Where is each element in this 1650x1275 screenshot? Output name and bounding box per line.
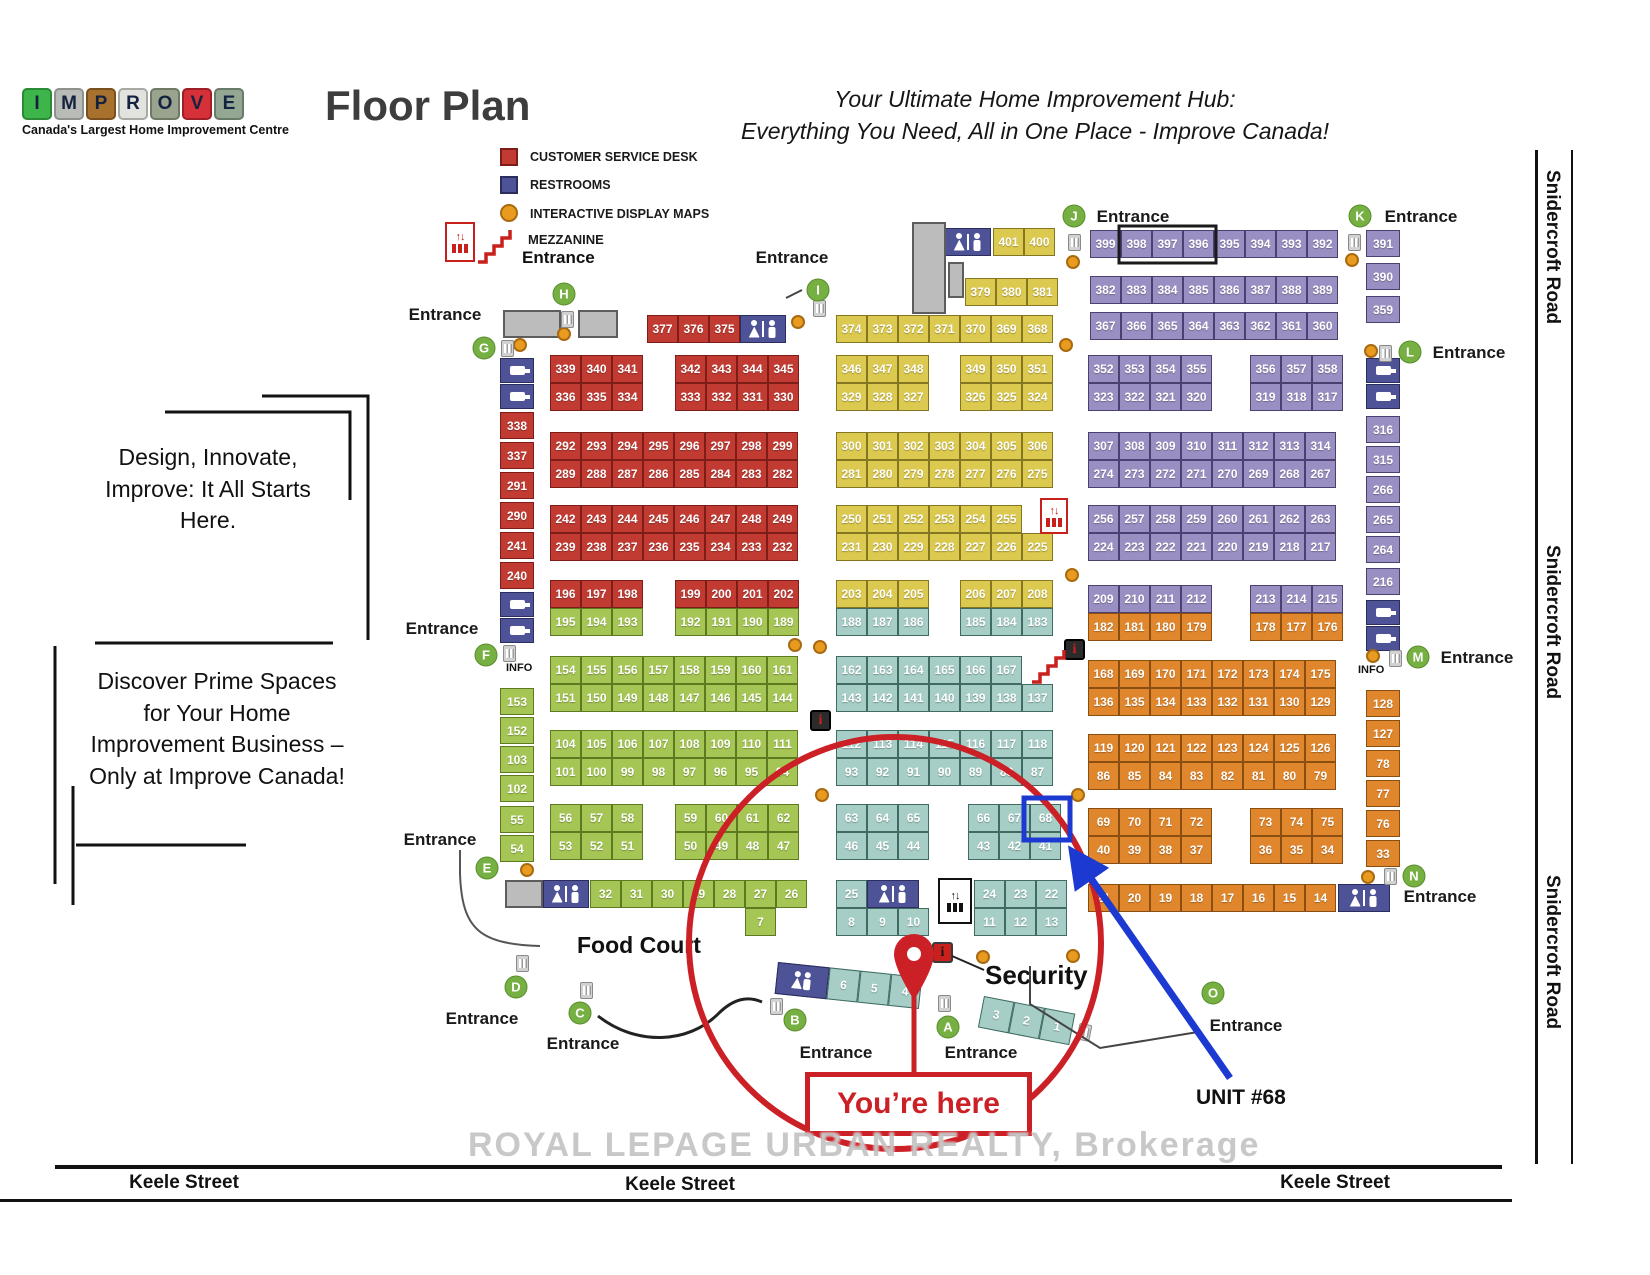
unit-115: 115: [929, 730, 960, 758]
unit-162: 162: [836, 656, 867, 684]
unit-374: 374: [836, 315, 867, 343]
unit-49: 49: [706, 832, 737, 860]
service-area-block: [503, 310, 561, 338]
unit-245: 245: [643, 505, 674, 533]
unit-385: 385: [1183, 276, 1214, 304]
unit-161: 161: [767, 656, 798, 684]
unit-298: 298: [736, 432, 767, 460]
entrance-marker-n: N: [1403, 865, 1426, 888]
unit-163: 163: [867, 656, 898, 684]
unit-240: 240: [500, 562, 534, 589]
unit-309: 309: [1150, 432, 1181, 460]
unit-229: 229: [898, 533, 929, 561]
unit-94: 94: [767, 758, 798, 786]
unit-239: 239: [550, 533, 581, 561]
unit-322: 322: [1119, 383, 1150, 411]
woman-icon: [954, 233, 964, 252]
unit-7: 7: [745, 908, 776, 936]
unit-241: 241: [500, 532, 534, 559]
unit-282: 282: [767, 460, 798, 488]
unit-266: 266: [1366, 476, 1400, 503]
unit-32: 32: [590, 880, 621, 908]
unit-180: 180: [1150, 613, 1181, 641]
unit-165: 165: [929, 656, 960, 684]
floor-plan-canvas: IMPROVE Canada's Largest Home Improvemen…: [0, 0, 1650, 1275]
unit-108: 108: [674, 730, 705, 758]
unit-156: 156: [612, 656, 643, 684]
unit-122: 122: [1181, 734, 1212, 762]
unit-339: 339: [550, 355, 581, 383]
unit-177: 177: [1281, 613, 1312, 641]
stairs-icon-map: [1032, 650, 1064, 682]
unit-233: 233: [736, 533, 767, 561]
unit-274: 274: [1088, 460, 1119, 488]
stairs-icon-legend: [478, 230, 510, 262]
unit-261: 261: [1243, 505, 1274, 533]
unit-134: 134: [1150, 688, 1181, 716]
unit-219: 219: [1243, 533, 1274, 561]
unit-181: 181: [1119, 613, 1150, 641]
entrance-marker-j: J: [1063, 205, 1086, 228]
unit-65: 65: [898, 804, 929, 832]
unit-308: 308: [1119, 432, 1150, 460]
unit-210: 210: [1119, 585, 1150, 613]
angled-units-2: 321: [978, 996, 1094, 1049]
unit-285: 285: [674, 460, 705, 488]
unit-387: 387: [1245, 276, 1276, 304]
unit-212: 212: [1181, 585, 1212, 613]
unit-184: 184: [991, 608, 1022, 636]
ev-charger-icon: [500, 592, 534, 617]
unit-120: 120: [1119, 734, 1150, 762]
unit-188: 188: [836, 608, 867, 636]
unit-311: 311: [1212, 432, 1243, 460]
unit-204: 204: [867, 580, 898, 608]
unit-41: 41: [1030, 832, 1061, 860]
unit-259: 259: [1181, 505, 1212, 533]
unit-359: 359: [1366, 296, 1400, 323]
unit-295: 295: [643, 432, 674, 460]
unit-394: 394: [1245, 230, 1276, 258]
unit-99: 99: [612, 758, 643, 786]
restroom-icon: [740, 315, 786, 343]
unit-226: 226: [991, 533, 1022, 561]
unit-262: 262: [1274, 505, 1305, 533]
unit-40: 40: [1088, 836, 1119, 864]
snidercroft-road-label-2: Snidercroft Road: [1541, 545, 1563, 699]
unit-203: 203: [836, 580, 867, 608]
unit-354: 354: [1150, 355, 1181, 383]
unit-107: 107: [643, 730, 674, 758]
unit-29: 29: [683, 880, 714, 908]
unit-267: 267: [1305, 460, 1336, 488]
unit-257: 257: [1119, 505, 1150, 533]
unit-302: 302: [898, 432, 929, 460]
unit-327: 327: [898, 383, 929, 411]
snidercroft-road-line-outer: [1535, 150, 1538, 1164]
unit-118: 118: [1022, 730, 1053, 758]
unit-150: 150: [581, 684, 612, 712]
unit-277: 277: [960, 460, 991, 488]
unit-278: 278: [929, 460, 960, 488]
unit-263: 263: [1305, 505, 1336, 533]
unit-297: 297: [705, 432, 736, 460]
unit-340: 340: [581, 355, 612, 383]
wall-entrance-c-b: [598, 999, 762, 1038]
kiosk-icon: [561, 311, 574, 328]
unit-336: 336: [550, 383, 581, 411]
unit-138: 138: [991, 684, 1022, 712]
unit-135: 135: [1119, 688, 1150, 716]
unit-279: 279: [898, 460, 929, 488]
elevator-icon: ↑↓: [938, 878, 972, 924]
unit-18: 18: [1181, 884, 1212, 912]
unit-141: 141: [898, 684, 929, 712]
unit-27: 27: [745, 880, 776, 908]
location-pin-hole: [907, 947, 921, 961]
unit-330: 330: [768, 383, 799, 411]
keele-street-label-3: Keele Street: [1280, 1172, 1390, 1194]
unit-227: 227: [960, 533, 991, 561]
interactive-map-icon: [1366, 649, 1380, 663]
unit-20: 20: [1119, 884, 1150, 912]
unit-86: 86: [1088, 762, 1119, 790]
unit-230: 230: [867, 533, 898, 561]
unit-384: 384: [1152, 276, 1183, 304]
unit-93: 93: [836, 758, 867, 786]
logo-tile: M: [54, 88, 84, 120]
unit-195: 195: [550, 608, 581, 636]
unit-396: 396: [1183, 230, 1214, 258]
unit-183: 183: [1022, 608, 1053, 636]
interactive-map-icon: [1361, 870, 1375, 884]
unit-124: 124: [1243, 734, 1274, 762]
unit-280: 280: [867, 460, 898, 488]
improve-logo: IMPROVE Canada's Largest Home Improvemen…: [22, 88, 289, 137]
man-icon: [570, 885, 580, 904]
entrance-marker-e: E: [476, 857, 499, 880]
unit-328: 328: [867, 383, 898, 411]
unit-254: 254: [960, 505, 991, 533]
tagline-line1: Your Ultimate Home Improvement Hub:: [660, 86, 1410, 113]
unit-145: 145: [736, 684, 767, 712]
unit-379: 379: [965, 278, 996, 306]
legend-customer-service-label: CUSTOMER SERVICE DESK: [530, 150, 698, 164]
unit-206: 206: [960, 580, 991, 608]
snidercroft-road-label-1: Snidercroft Road: [1541, 170, 1563, 324]
unit-15: 15: [1274, 884, 1305, 912]
unit-269: 269: [1243, 460, 1274, 488]
unit-373: 373: [867, 315, 898, 343]
unit-171: 171: [1181, 660, 1212, 688]
tagline-line2: Everything You Need, All in One Place - …: [660, 118, 1410, 145]
unit-361: 361: [1276, 312, 1307, 340]
unit-72: 72: [1181, 808, 1212, 836]
customer-service-swatch: [500, 148, 518, 166]
unit-273: 273: [1119, 460, 1150, 488]
unit-372: 372: [898, 315, 929, 343]
unit-337: 337: [500, 442, 534, 469]
unit-388: 388: [1276, 276, 1307, 304]
service-area-block: [948, 262, 964, 298]
unit-324: 324: [1022, 383, 1053, 411]
unit-102: 102: [500, 775, 534, 802]
entrance-marker-b: B: [784, 1009, 807, 1032]
unit-189: 189: [768, 608, 799, 636]
entrance-label-c: Entrance: [547, 1034, 620, 1054]
unit-50: 50: [675, 832, 706, 860]
info-icon: i: [932, 942, 953, 963]
food-court-label: Food Court: [577, 932, 701, 959]
kiosk-icon: [1068, 234, 1081, 251]
unit-306: 306: [1022, 432, 1053, 460]
unit-299: 299: [767, 432, 798, 460]
unit-290: 290: [500, 502, 534, 529]
info-desk-label-left: INFO: [506, 662, 532, 674]
unit-355: 355: [1181, 355, 1212, 383]
unit-389: 389: [1307, 276, 1338, 304]
unit-128: 128: [1366, 690, 1400, 717]
unit-30: 30: [652, 880, 683, 908]
unit-386: 386: [1214, 276, 1245, 304]
unit-169: 169: [1119, 660, 1150, 688]
unit-92: 92: [867, 758, 898, 786]
mezzanine-entrance-label: Entrance: [522, 248, 595, 268]
unit-114: 114: [898, 730, 929, 758]
unit-11: 11: [974, 908, 1005, 936]
unit-148: 148: [643, 684, 674, 712]
unit-375: 375: [709, 315, 740, 343]
unit-160: 160: [736, 656, 767, 684]
kiosk-icon: [503, 645, 516, 662]
unit-283: 283: [736, 460, 767, 488]
unit-70: 70: [1119, 808, 1150, 836]
man-icon: [897, 885, 907, 904]
unit-301: 301: [867, 432, 898, 460]
unit-201: 201: [737, 580, 768, 608]
unit-392: 392: [1307, 230, 1338, 258]
snidercroft-road-label-3: Snidercroft Road: [1541, 875, 1563, 1029]
unit-284: 284: [705, 460, 736, 488]
unit-200: 200: [706, 580, 737, 608]
unit-382: 382: [1090, 276, 1121, 304]
unit-190: 190: [737, 608, 768, 636]
unit-332: 332: [706, 383, 737, 411]
unit-281: 281: [836, 460, 867, 488]
unit-293: 293: [581, 432, 612, 460]
unit-383: 383: [1121, 276, 1152, 304]
unit-1: 1: [1039, 1008, 1076, 1045]
ev-charger-icon: [500, 358, 534, 383]
interactive-map-icon: [788, 638, 802, 652]
brokerage-watermark: ROYAL LEPAGE URBAN REALTY, Brokerage: [468, 1126, 1260, 1165]
unit-196: 196: [550, 580, 581, 608]
legend-mezzanine-label: MEZZANINE: [528, 232, 604, 247]
unit-176: 176: [1312, 613, 1343, 641]
unit-231: 231: [836, 533, 867, 561]
unit-136: 136: [1088, 688, 1119, 716]
unit-198: 198: [612, 580, 643, 608]
unit-26: 26: [776, 880, 807, 908]
unit-5: 5: [857, 971, 891, 1006]
logo-tile: P: [86, 88, 116, 120]
unit-381: 381: [1027, 278, 1058, 306]
unit-318: 318: [1281, 383, 1312, 411]
ev-charger-icon: [500, 384, 534, 409]
unit-47: 47: [768, 832, 799, 860]
unit-178: 178: [1250, 613, 1281, 641]
unit-356: 356: [1250, 355, 1281, 383]
unit-391: 391: [1366, 230, 1400, 257]
unit-186: 186: [898, 608, 929, 636]
unit-260: 260: [1212, 505, 1243, 533]
unit-312: 312: [1243, 432, 1274, 460]
woman-icon: [1350, 889, 1360, 908]
unit-61: 61: [737, 804, 768, 832]
unit-271: 271: [1181, 460, 1212, 488]
unit-54: 54: [500, 835, 534, 862]
interactive-map-icon: [1345, 253, 1359, 267]
entrance-marker-c: C: [569, 1002, 592, 1025]
unit-264: 264: [1366, 536, 1400, 563]
woman-icon: [749, 320, 759, 339]
unit-38: 38: [1150, 836, 1181, 864]
unit-89: 89: [960, 758, 991, 786]
unit-39: 39: [1119, 836, 1150, 864]
interactive-map-icon: [1065, 568, 1079, 582]
logo-tile: E: [214, 88, 244, 120]
security-label: Security: [985, 960, 1088, 991]
logo-subtitle: Canada's Largest Home Improvement Centre: [22, 123, 289, 137]
kiosk-icon: [770, 998, 783, 1015]
entrance-marker-h: H: [553, 283, 576, 306]
unit-350: 350: [991, 355, 1022, 383]
unit-215: 215: [1312, 585, 1343, 613]
page-title: Floor Plan: [325, 82, 530, 130]
unit-31: 31: [621, 880, 652, 908]
keele-street-line-bottom: [0, 1199, 1512, 1202]
interactive-map-icon: [815, 788, 829, 802]
unit-289: 289: [550, 460, 581, 488]
unit-77: 77: [1366, 780, 1400, 807]
unit-123: 123: [1212, 734, 1243, 762]
unit-296: 296: [674, 432, 705, 460]
unit-193: 193: [612, 608, 643, 636]
unit-326: 326: [960, 383, 991, 411]
unit-112: 112: [836, 730, 867, 758]
unit-4: 4: [888, 974, 922, 1009]
unit-335: 335: [581, 383, 612, 411]
unit-151: 151: [550, 684, 581, 712]
unit-68-callout: UNIT #68: [1196, 1086, 1286, 1110]
man-icon: [1368, 889, 1378, 908]
unit-288: 288: [581, 460, 612, 488]
unit-17: 17: [1212, 884, 1243, 912]
interactive-map-icon: [1066, 255, 1080, 269]
logo-tile: I: [22, 88, 52, 120]
unit-364: 364: [1183, 312, 1214, 340]
unit-272: 272: [1150, 460, 1181, 488]
unit-370: 370: [960, 315, 991, 343]
unit-22: 22: [1036, 880, 1067, 908]
unit-303: 303: [929, 432, 960, 460]
unit-87: 87: [1022, 758, 1053, 786]
unit-139: 139: [960, 684, 991, 712]
unit-367: 367: [1090, 312, 1121, 340]
logo-tile: R: [118, 88, 148, 120]
unit-345: 345: [768, 355, 799, 383]
entrance-marker-a: A: [937, 1016, 960, 1039]
entrance-marker-k: K: [1349, 205, 1372, 228]
unit-74: 74: [1281, 808, 1312, 836]
unit-16: 16: [1243, 884, 1274, 912]
unit-76: 76: [1366, 810, 1400, 837]
entrance-label-l: Entrance: [1433, 343, 1506, 363]
unit-390: 390: [1366, 263, 1400, 290]
unit-199: 199: [675, 580, 706, 608]
ev-charger-icon: [1366, 600, 1400, 625]
kiosk-icon: [516, 955, 529, 972]
interactive-map-icon: [520, 863, 534, 877]
entrance-marker-o: O: [1202, 982, 1225, 1005]
service-area-block: [505, 880, 543, 908]
unit-223: 223: [1119, 533, 1150, 561]
entrance-marker-f: F: [475, 644, 498, 667]
unit-10: 10: [898, 908, 929, 936]
unit-153: 153: [500, 688, 534, 715]
info-icon: i: [1064, 639, 1085, 660]
keele-street-label-2: Keele Street: [625, 1174, 735, 1196]
unit-98: 98: [643, 758, 674, 786]
unit-33: 33: [1366, 840, 1400, 867]
restrooms-swatch: [500, 176, 518, 194]
unit-144: 144: [767, 684, 798, 712]
unit-129: 129: [1305, 688, 1336, 716]
unit-44: 44: [898, 832, 929, 860]
unit-12: 12: [1005, 908, 1036, 936]
unit-8: 8: [836, 908, 867, 936]
restroom-icon: [945, 228, 991, 256]
elevator-icon: ↑↓: [445, 222, 475, 262]
unit-127: 127: [1366, 720, 1400, 747]
unit-103: 103: [500, 746, 534, 773]
restroom-icon: [775, 962, 830, 999]
logo-tile: O: [150, 88, 180, 120]
unit-80: 80: [1274, 762, 1305, 790]
entrance-label-m: Entrance: [1441, 648, 1514, 668]
unit-56: 56: [550, 804, 581, 832]
unit-121: 121: [1150, 734, 1181, 762]
unit-192: 192: [675, 608, 706, 636]
unit-23: 23: [1005, 880, 1036, 908]
unit-25: 25: [836, 880, 867, 908]
unit-173: 173: [1243, 660, 1274, 688]
info-desk-label-right: INFO: [1358, 664, 1384, 676]
unit-48: 48: [737, 832, 768, 860]
unit-73: 73: [1250, 808, 1281, 836]
unit-400: 400: [1024, 228, 1055, 256]
unit-395: 395: [1214, 230, 1245, 258]
unit-60: 60: [706, 804, 737, 832]
interactive-map-icon: [557, 327, 571, 341]
unit-146: 146: [705, 684, 736, 712]
unit-236: 236: [643, 533, 674, 561]
unit-248: 248: [736, 505, 767, 533]
unit-315: 315: [1366, 446, 1400, 473]
unit-205: 205: [898, 580, 929, 608]
entrance-marker-l: L: [1399, 341, 1422, 364]
man-icon: [972, 233, 982, 252]
